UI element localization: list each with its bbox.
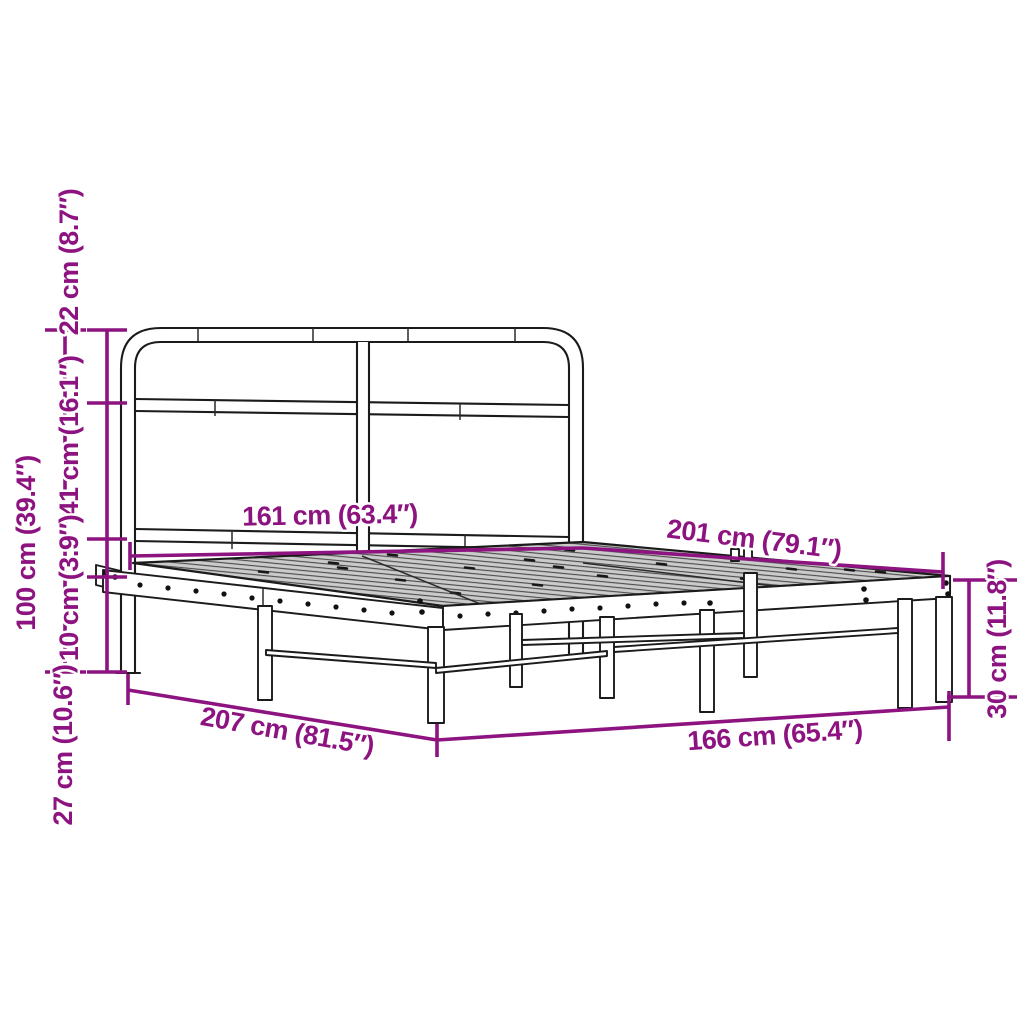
dimension-label-frame-gap: 10 cm (3.9″) (54, 515, 84, 662)
dimension-label-headboard-width: 161 cm (63.4″) (242, 499, 418, 532)
leg (936, 597, 952, 702)
leg (600, 617, 614, 698)
leg (510, 614, 522, 687)
dimension-label-headboard-top: 22 cm (8.7″) (54, 189, 84, 336)
leg (428, 627, 444, 723)
leg (744, 573, 757, 677)
dimension-label-under-clearance: 27 cm (10.6″) (48, 664, 78, 825)
leg (700, 610, 714, 712)
dimension-label-headboard-middle: 41 cm (16.1″) (54, 355, 84, 516)
background (0, 0, 1024, 1024)
leg (898, 599, 912, 708)
dimension-label-base-height: 30 cm (11.8″) (982, 559, 1012, 719)
bed-frame-dimension-diagram: 100 cm (39.4″) 22 cm (8.7″) 41 cm (16.1″… (0, 0, 1024, 1024)
dimension-label-total-height: 100 cm (39.4″) (11, 455, 41, 631)
